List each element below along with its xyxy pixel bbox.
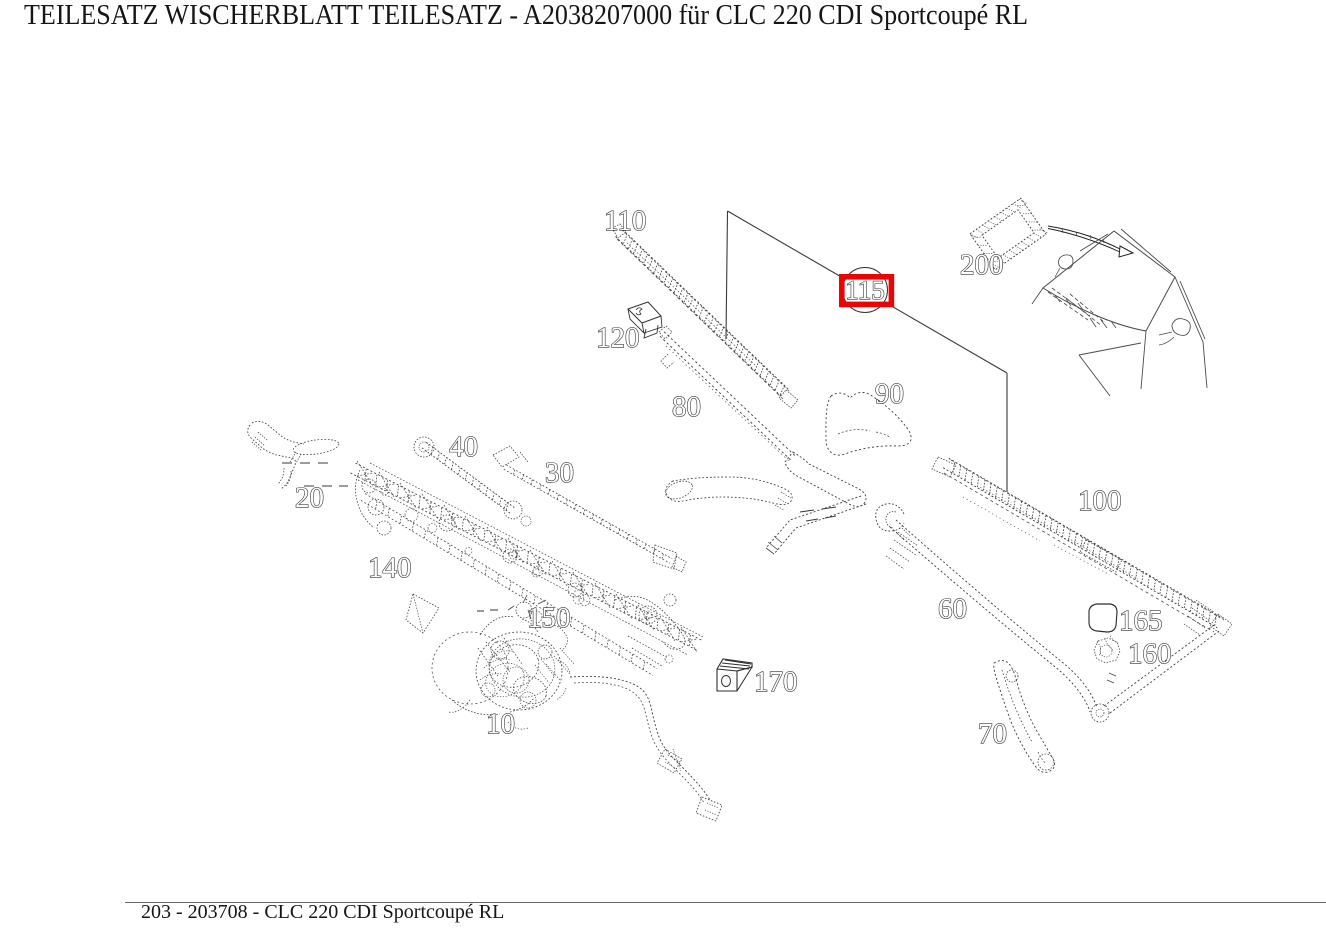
svg-text:20: 20 bbox=[295, 482, 324, 514]
svg-text:165: 165 bbox=[1119, 605, 1163, 637]
svg-text:170: 170 bbox=[754, 666, 798, 698]
svg-text:150: 150 bbox=[527, 602, 571, 634]
svg-text:30: 30 bbox=[545, 457, 574, 489]
svg-text:120: 120 bbox=[596, 322, 640, 354]
svg-text:100: 100 bbox=[1078, 485, 1122, 517]
svg-text:90: 90 bbox=[875, 378, 904, 410]
svg-text:110: 110 bbox=[604, 205, 646, 237]
svg-text:160: 160 bbox=[1128, 638, 1172, 670]
svg-text:80: 80 bbox=[672, 391, 701, 423]
svg-text:10: 10 bbox=[486, 708, 515, 740]
svg-text:140: 140 bbox=[368, 552, 412, 584]
svg-text:40: 40 bbox=[449, 431, 478, 463]
svg-text:200: 200 bbox=[960, 249, 1004, 281]
svg-text:70: 70 bbox=[978, 718, 1007, 750]
svg-text:115: 115 bbox=[845, 275, 885, 305]
svg-text:60: 60 bbox=[938, 593, 967, 625]
